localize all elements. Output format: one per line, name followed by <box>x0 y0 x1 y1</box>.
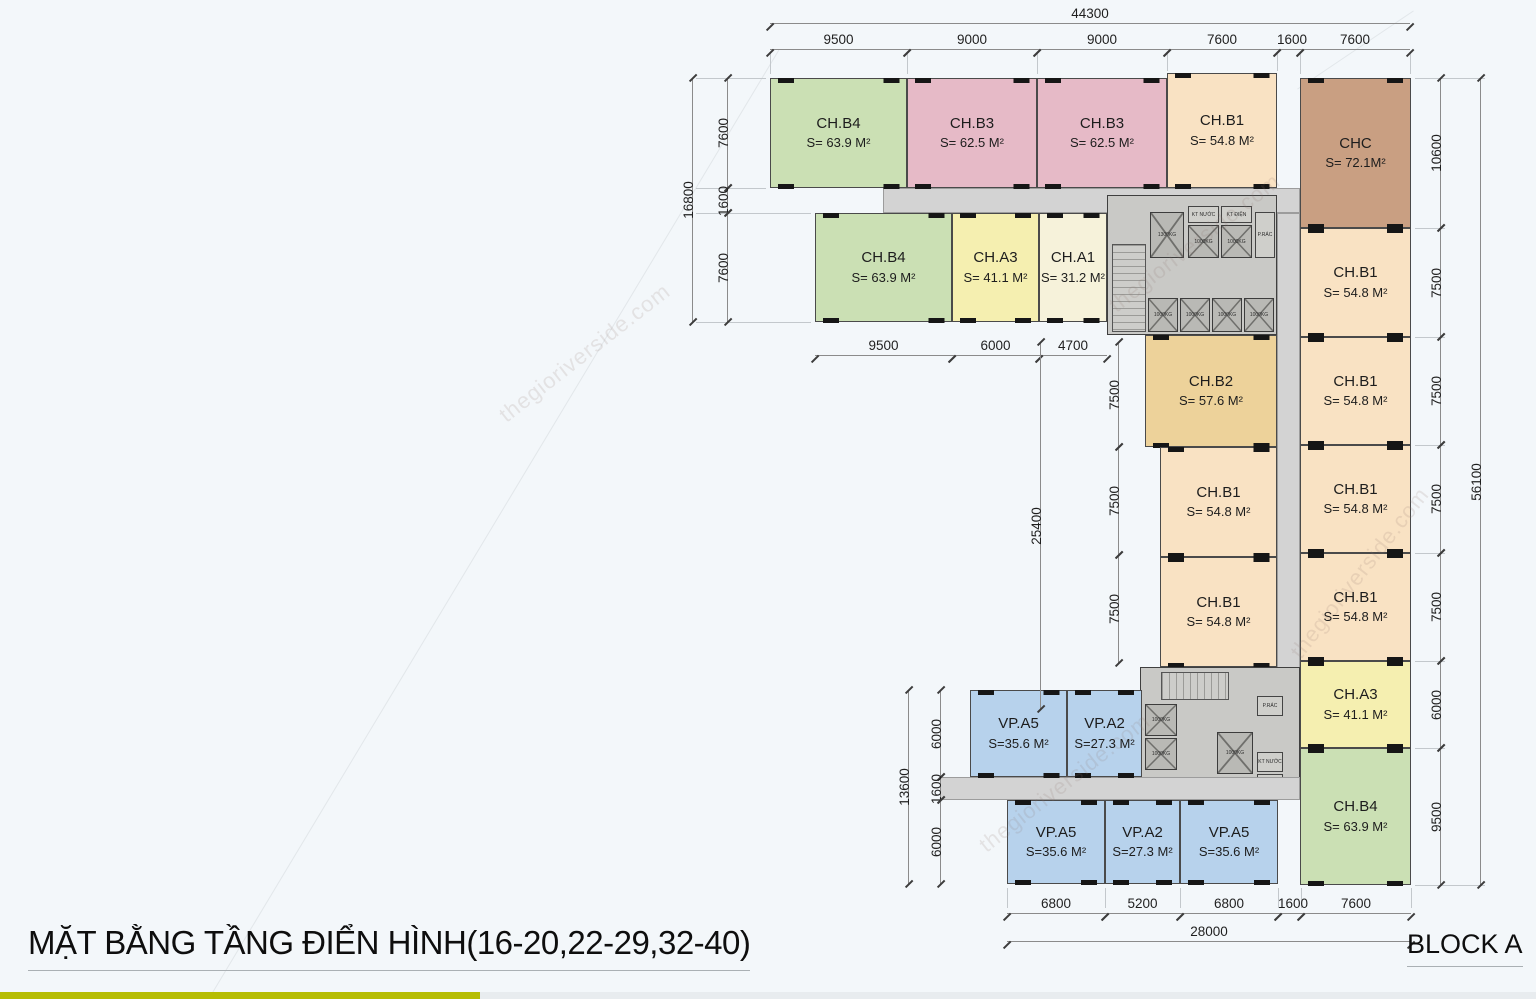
dim-top-seg: 7600 <box>1167 34 1277 50</box>
dim-right-seg: 10600 <box>1440 78 1456 228</box>
room-chb3-1: CH.B3S= 62.5 M² <box>907 78 1037 188</box>
dim-top-seg: 9000 <box>907 34 1037 50</box>
room-vpa2-2: VP.A2S=27.3 M² <box>1105 800 1180 884</box>
room-name: CH.B4 <box>807 113 871 135</box>
block-label: BLOCK A <box>1407 929 1523 967</box>
extension-line <box>1037 52 1038 74</box>
room-chb1-top: CH.B1S= 54.8 M² <box>1167 73 1277 188</box>
room-name: CH.B1 <box>1190 110 1254 132</box>
corridor-vp <box>940 777 1300 800</box>
room-chb4-row2: CH.B4S= 63.9 M² <box>815 213 952 322</box>
room-name: CH.B1 <box>1187 592 1251 614</box>
room-chb3-2: CH.B3S= 62.5 M² <box>1037 78 1167 188</box>
dim-row2-seg: 6000 <box>952 340 1039 356</box>
dim-right-seg: 7500 <box>1440 553 1456 661</box>
room-name: CH.A3 <box>1324 684 1388 706</box>
staircase <box>1161 672 1229 700</box>
room-area: S= 54.8 M² <box>1187 613 1251 632</box>
dim-top-total: 44300 <box>770 8 1410 24</box>
room-area: S=27.3 M² <box>1112 843 1172 862</box>
room-area: S= 41.1 M² <box>964 269 1028 288</box>
watermark: thegioriverside.com <box>494 278 675 428</box>
dim-mid-total: 25400 <box>1040 342 1056 709</box>
room-cha3-right: CH.A3S= 41.1 M² <box>1300 661 1411 748</box>
plan-title: MẶT BẰNG TẦNG ĐIỂN HÌNH(16-20,22-29,32-4… <box>28 924 750 971</box>
dim-row2-seg: 9500 <box>815 340 952 356</box>
room-name: CH.B1 <box>1324 262 1388 284</box>
extension-line <box>1277 52 1278 71</box>
room-name: CH.B4 <box>1324 796 1388 818</box>
room-area: S= 63.9 M² <box>807 134 871 153</box>
room-area: S= 63.9 M² <box>1324 818 1388 837</box>
elevator-icon: 1000KG <box>1217 732 1253 774</box>
room-name: CH.B4 <box>852 247 916 269</box>
elevator-icon: 1000KG <box>1212 298 1242 332</box>
room-area: S=35.6 M² <box>988 735 1048 754</box>
room-chc: CHCS= 72.1M² <box>1300 78 1411 228</box>
dim-lowerleft-seg: 6000 <box>940 690 956 777</box>
room-area: S= 62.5 M² <box>1070 134 1134 153</box>
room-area: S= 72.1M² <box>1325 154 1385 173</box>
dim-mid-seg: 7500 <box>1118 555 1134 663</box>
room-area: S=35.6 M² <box>1199 843 1259 862</box>
room-kt-nuoc: KT NƯỚC <box>1257 752 1283 772</box>
room-name: CH.A3 <box>964 247 1028 269</box>
elevator-icon: 1000KG <box>1148 298 1178 332</box>
dim-bottom-seg: 6800 <box>1180 898 1278 914</box>
room-chb1-right-2: CH.B1S= 54.8 M² <box>1300 337 1411 445</box>
room-area: S= 63.9 M² <box>852 269 916 288</box>
room-chb1-right-1: CH.B1S= 54.8 M² <box>1300 228 1411 337</box>
room-name: VP.A5 <box>1199 822 1259 844</box>
room-name: VP.A2 <box>1112 822 1172 844</box>
dim-lowerleft-seg: 6000 <box>940 800 956 884</box>
room-area: S= 62.5 M² <box>940 134 1004 153</box>
elevator-core-top: 1300KG KT NƯỚC KT ĐIỆN 1000KG 1000KG P.R… <box>1107 195 1277 335</box>
dim-right-seg: 7500 <box>1440 228 1456 337</box>
room-chb1-mid-2: CH.B1S= 54.8 M² <box>1160 557 1277 667</box>
dim-lowerleft-total: 13600 <box>908 690 924 884</box>
extension-line <box>1167 52 1168 71</box>
dim-bottom-seg: 1600 <box>1278 898 1301 914</box>
room-area: S= 54.8 M² <box>1190 132 1254 151</box>
room-name: CHC <box>1325 133 1385 155</box>
room-name: VP.A5 <box>988 713 1048 735</box>
dim-bottom-seg: 6800 <box>1007 898 1105 914</box>
dim-right-seg: 6000 <box>1440 661 1456 748</box>
room-name: VP.A5 <box>1026 822 1086 844</box>
room-area: S= 54.8 M² <box>1324 392 1388 411</box>
room-area: S=27.3 M² <box>1074 735 1134 754</box>
room-p-rac: P.RÁC <box>1255 212 1275 258</box>
room-area: S= 54.8 M² <box>1324 500 1388 519</box>
extension-line <box>770 52 771 74</box>
extension-line <box>907 52 908 74</box>
room-p-rac: P.RÁC <box>1257 696 1283 716</box>
room-cha1: CH.A1S= 31.2 M² <box>1039 213 1107 322</box>
extension-line <box>1411 888 1412 908</box>
dim-left-total: 16800 <box>692 78 708 322</box>
room-area: S= 31.2 M² <box>1041 269 1105 288</box>
room-name: CH.B2 <box>1179 371 1243 393</box>
dim-bottom-seg: 7600 <box>1301 898 1411 914</box>
room-name: CH.B1 <box>1324 587 1388 609</box>
elevator-icon: 1000KG <box>1244 298 1274 332</box>
extension-line <box>1415 885 1485 886</box>
room-area: S= 57.6 M² <box>1179 392 1243 411</box>
room-name: VP.A2 <box>1074 713 1134 735</box>
room-area: S= 54.8 M² <box>1187 503 1251 522</box>
elevator-icon: 1000KG <box>1145 738 1177 770</box>
extension-line <box>696 213 811 214</box>
room-name: CH.B1 <box>1324 371 1388 393</box>
dim-top-seg: 9500 <box>770 34 907 50</box>
dim-right-seg: 7500 <box>1440 337 1456 445</box>
room-name: CH.B1 <box>1187 482 1251 504</box>
floor-plan-canvas: CH.B4S= 63.9 M² CH.B3S= 62.5 M² CH.B3S= … <box>0 0 1536 999</box>
room-name: CH.B1 <box>1324 479 1388 501</box>
elevator-icon: 1000KG <box>1180 298 1210 332</box>
dim-bottom-total: 28000 <box>1007 926 1411 942</box>
dim-top-seg: 7600 <box>1300 34 1410 50</box>
dim-mid-seg: 7500 <box>1118 342 1134 447</box>
room-area: S=35.6 M² <box>1026 843 1086 862</box>
extension-line <box>1410 52 1411 74</box>
room-area: S= 54.8 M² <box>1324 608 1388 627</box>
dim-left-seg: 7600 <box>727 78 743 188</box>
room-vpa5-3: VP.A5S=35.6 M² <box>1180 800 1278 884</box>
room-name: CH.A1 <box>1041 247 1105 269</box>
room-chb4-right: CH.B4S= 63.9 M² <box>1300 748 1411 885</box>
dim-right-total: 56100 <box>1480 78 1496 885</box>
room-area: S= 54.8 M² <box>1324 284 1388 303</box>
extension-line <box>1300 52 1301 74</box>
room-name: CH.B3 <box>940 113 1004 135</box>
accent-bar-left <box>0 992 480 999</box>
room-chb4-top: CH.B4S= 63.9 M² <box>770 78 907 188</box>
room-area: S= 41.1 M² <box>1324 706 1388 725</box>
room-chb1-mid-1: CH.B1S= 54.8 M² <box>1160 447 1277 557</box>
dim-mid-seg: 7500 <box>1118 447 1134 555</box>
dim-top-seg: 1600 <box>1277 34 1300 50</box>
room-name: CH.B3 <box>1070 113 1134 135</box>
extension-line <box>696 322 811 323</box>
accent-bar-right <box>480 992 1536 999</box>
dim-right-seg: 9500 <box>1440 748 1456 885</box>
room-chb2: CH.B2S= 57.6 M² <box>1145 335 1277 447</box>
dim-right-seg: 7500 <box>1440 445 1456 553</box>
dim-left-seg: 7600 <box>727 213 743 322</box>
dim-top-seg: 9000 <box>1037 34 1167 50</box>
room-cha3-row2: CH.A3S= 41.1 M² <box>952 213 1039 322</box>
dim-bottom-seg: 5200 <box>1105 898 1180 914</box>
